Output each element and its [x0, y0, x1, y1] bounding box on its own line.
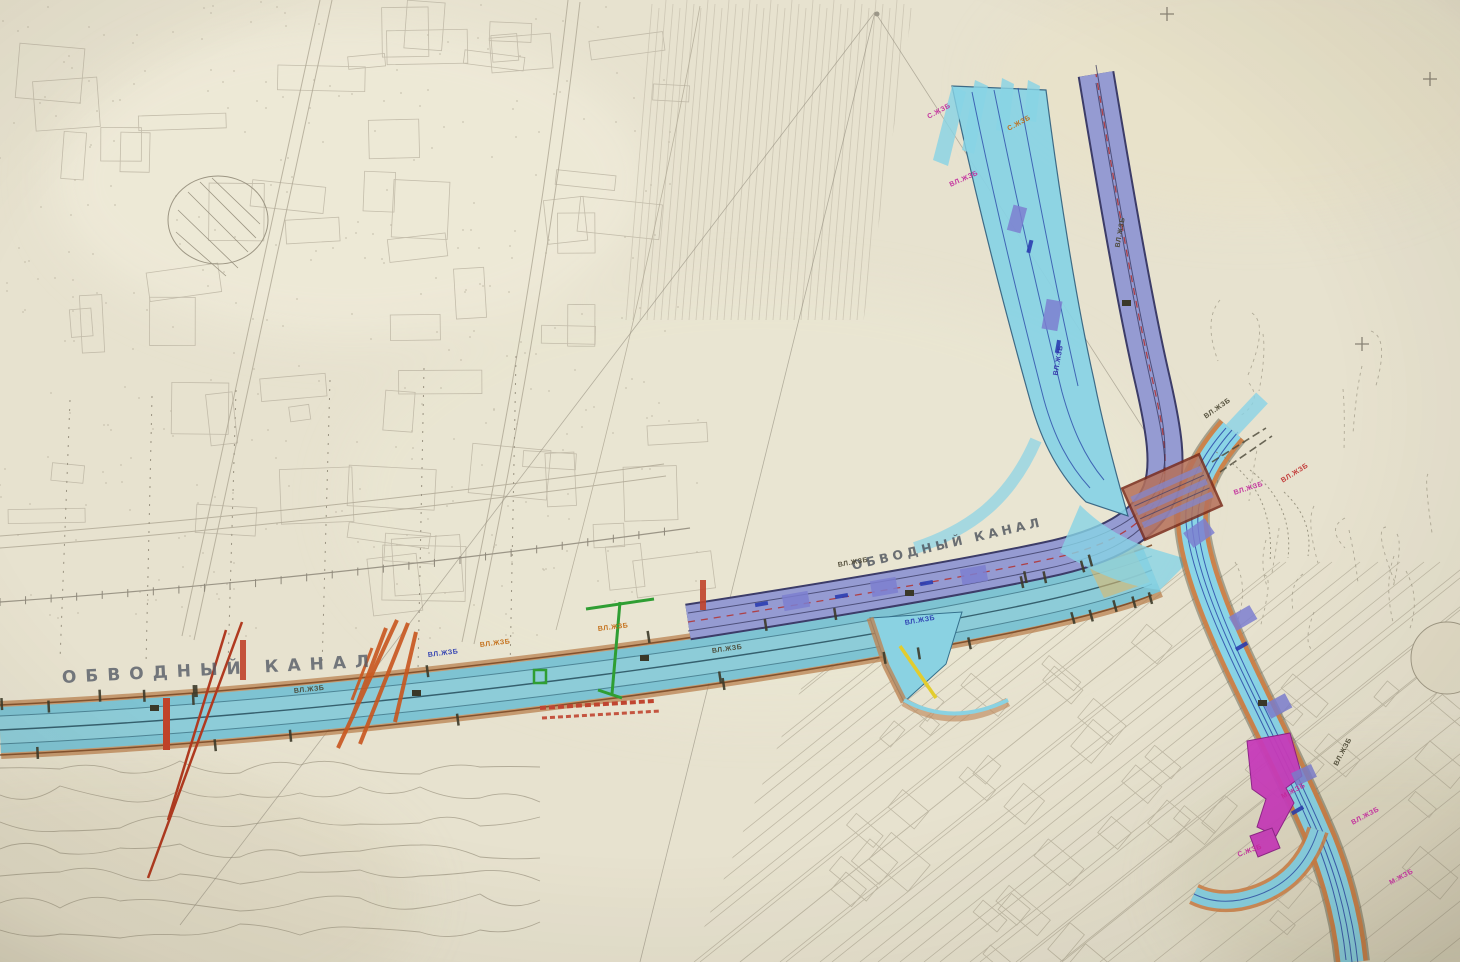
scan-vignette [0, 0, 1460, 962]
map-scan: ОБВОДНЫЙ КАНАЛОБВОДНЫЙ КАНАЛС.ЖЗБС.ЖЗБВЛ… [0, 0, 1460, 962]
map-linework [0, 0, 1460, 962]
